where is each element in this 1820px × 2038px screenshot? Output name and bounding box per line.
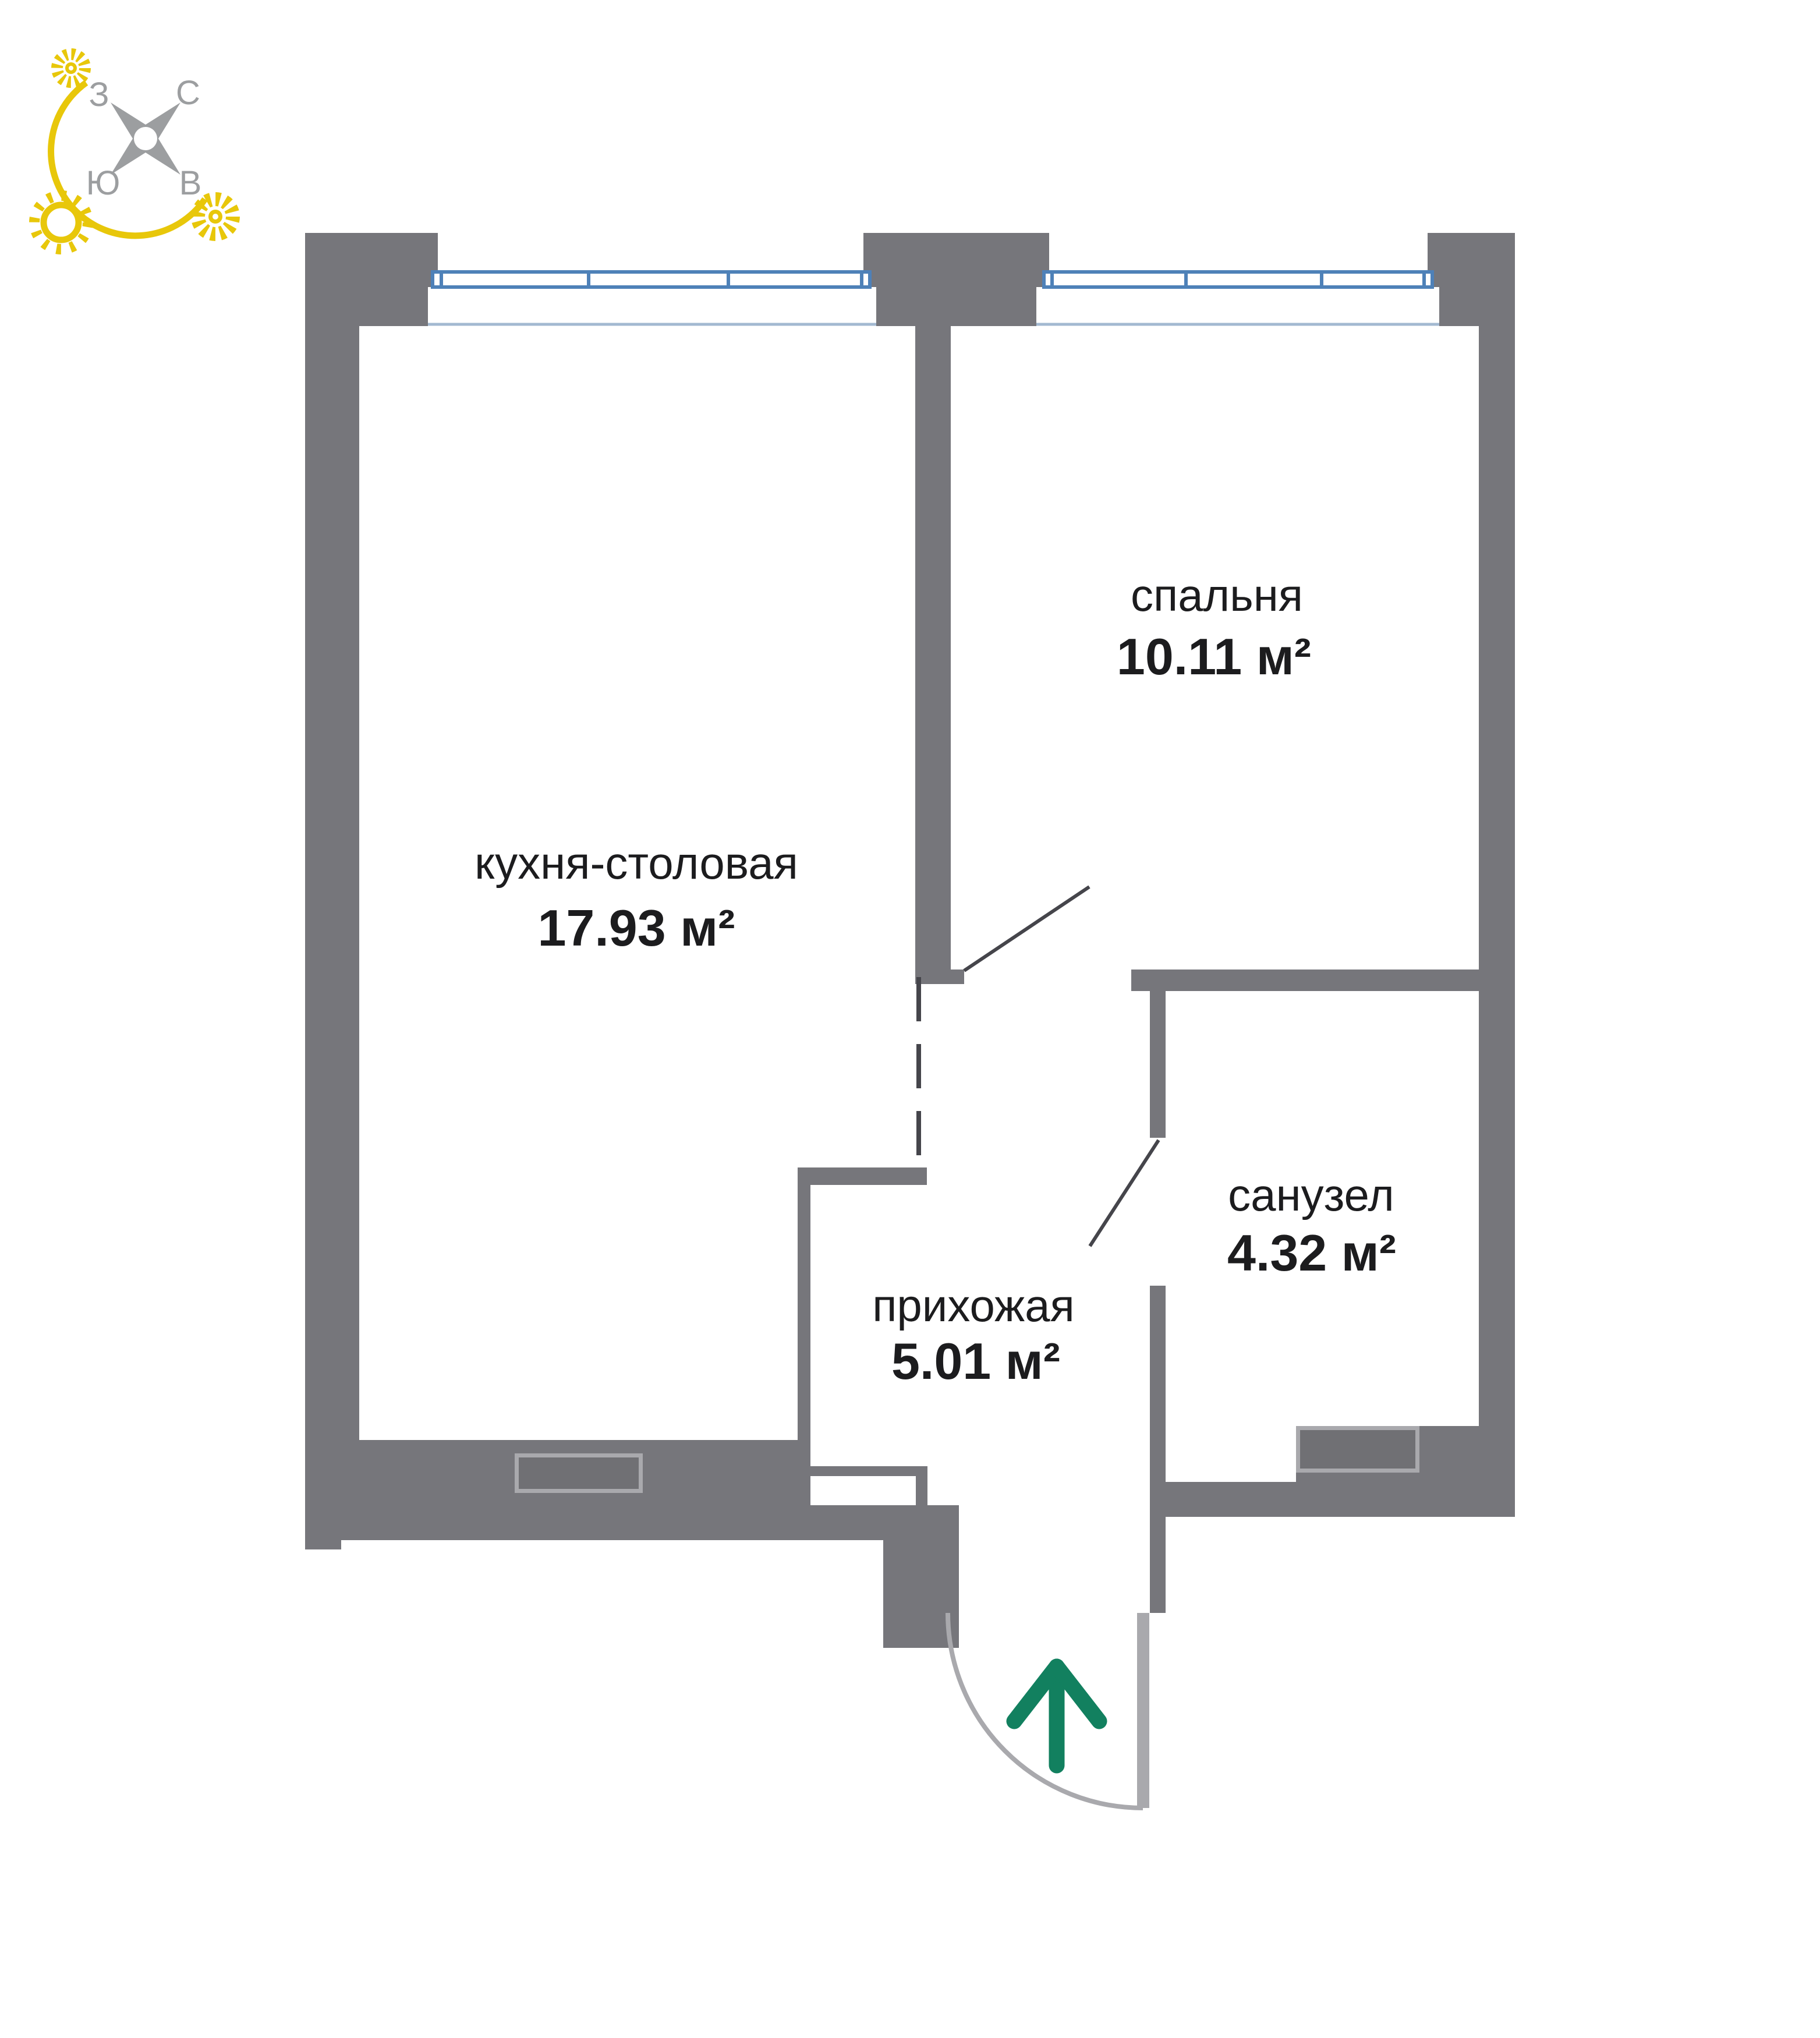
- hallway-bottom-wall: [810, 1505, 959, 1540]
- entrance-arrow-icon: [1014, 1667, 1099, 1765]
- kitchen-bedroom-partition: [915, 326, 951, 984]
- bedroom-door-leaf: [964, 887, 1089, 971]
- bathroom-north-wall: [1131, 970, 1479, 991]
- bathroom-west-wall-upper: [1150, 991, 1166, 1138]
- partition-foot: [951, 970, 964, 984]
- window-left-outer-recess: [438, 233, 863, 272]
- entrance-left-jamb: [883, 1540, 959, 1648]
- sun-icon: [198, 199, 233, 234]
- left-outer-wall: [305, 233, 359, 1540]
- compass-west-label: З: [76, 75, 122, 115]
- bathroom-label: санузел: [1078, 1168, 1544, 1222]
- bathroom-south-wall: [1150, 1482, 1515, 1517]
- entrance-door-leaf: [1137, 1613, 1149, 1808]
- left-wall-bottom-step: [305, 1540, 341, 1549]
- kitchen-label: кухня-столовая: [374, 836, 898, 890]
- hallway-label: прихожая: [741, 1279, 1206, 1332]
- top-wall-right-corner: [1428, 233, 1515, 326]
- top-wall-center-pier: [863, 233, 1049, 287]
- bedroom-label: спальня: [984, 568, 1450, 622]
- right-outer-wall: [1479, 326, 1515, 1517]
- window-icon-right: [1044, 272, 1432, 287]
- window-right-sill: [1036, 287, 1439, 326]
- top-wall-left-corner: [359, 233, 438, 326]
- compass-north-label: С: [165, 73, 211, 114]
- window-left-sill: [428, 287, 876, 326]
- bathroom-shaft: [1296, 1426, 1419, 1473]
- window-right-outer-recess: [1049, 233, 1428, 272]
- compass-east-label: В: [167, 163, 214, 204]
- window-icon-left: [433, 272, 870, 287]
- top-wall-center-pier-lower: [876, 287, 1036, 326]
- kitchen-radiator: [515, 1453, 643, 1493]
- hallway-north-stub: [810, 1167, 927, 1185]
- compass-south-label: Ю: [80, 163, 126, 204]
- hallway-thin-wall: [810, 1466, 927, 1476]
- hallway-area: 5.01 м²: [743, 1332, 1209, 1390]
- floor-plan: З С Ю В кухня-столовая 17.93 м² спальня …: [0, 0, 1820, 2038]
- entrance-door-swing-arc: [948, 1613, 1143, 1808]
- bathroom-area: 4.32 м²: [1079, 1224, 1545, 1282]
- hallway-thin-wall-return: [916, 1466, 927, 1505]
- bedroom-area: 10.11 м²: [981, 628, 1447, 686]
- kitchen-area: 17.93 м²: [374, 899, 898, 957]
